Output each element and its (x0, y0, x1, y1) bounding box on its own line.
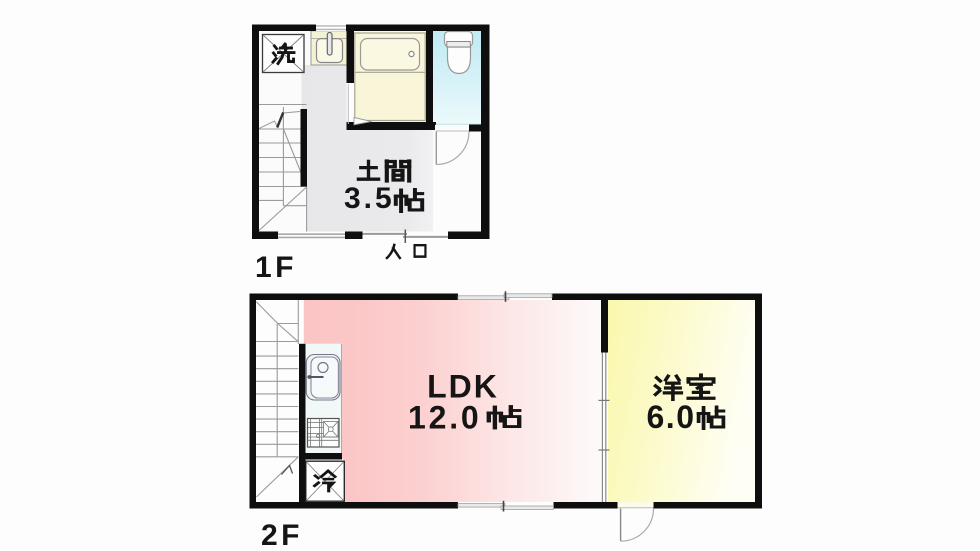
svg-text:12.0: 12.0 (408, 400, 481, 436)
svg-text:6.0: 6.0 (647, 399, 696, 435)
svg-text:2F: 2F (261, 519, 303, 551)
svg-text:1F: 1F (255, 251, 297, 284)
svg-text:3.5: 3.5 (344, 182, 395, 215)
